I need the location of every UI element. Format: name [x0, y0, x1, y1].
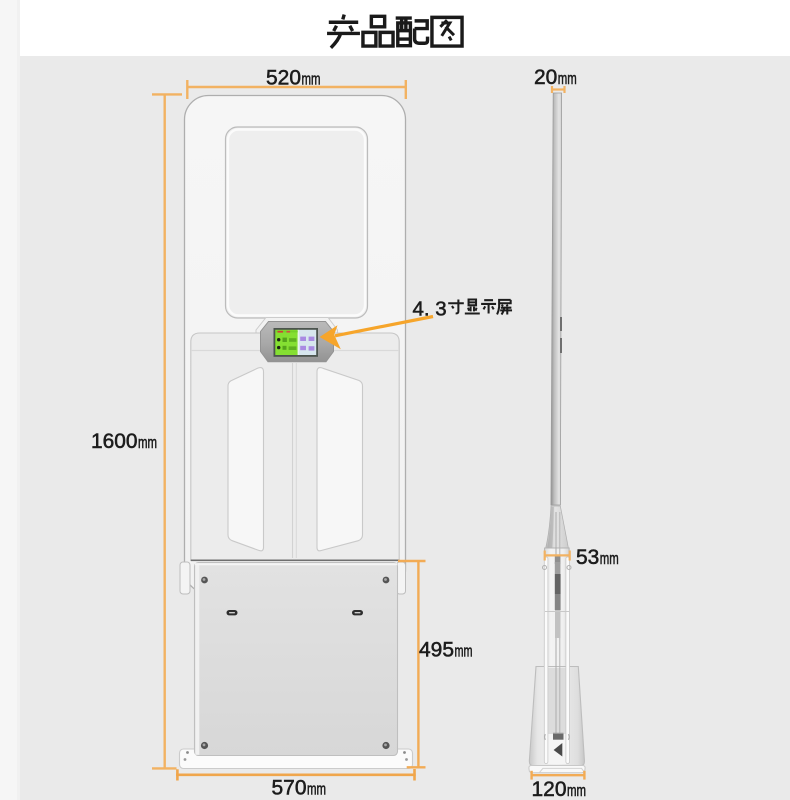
- svg-text:1600: 1600: [91, 430, 138, 453]
- svg-text:53: 53: [576, 546, 599, 569]
- svg-text:20: 20: [534, 66, 557, 89]
- svg-text:495: 495: [419, 639, 454, 662]
- svg-text:mm: mm: [558, 70, 577, 88]
- svg-text:mm: mm: [567, 782, 586, 800]
- svg-text:mm: mm: [302, 71, 321, 89]
- svg-text:4. 3: 4. 3: [413, 298, 447, 321]
- svg-text:120: 120: [532, 778, 567, 800]
- svg-text:mm: mm: [600, 550, 619, 568]
- svg-text:520: 520: [266, 67, 301, 90]
- svg-text:mm: mm: [455, 643, 473, 661]
- svg-text:mm: mm: [307, 781, 326, 799]
- svg-text:mm: mm: [138, 434, 157, 452]
- svg-text:570: 570: [272, 777, 307, 800]
